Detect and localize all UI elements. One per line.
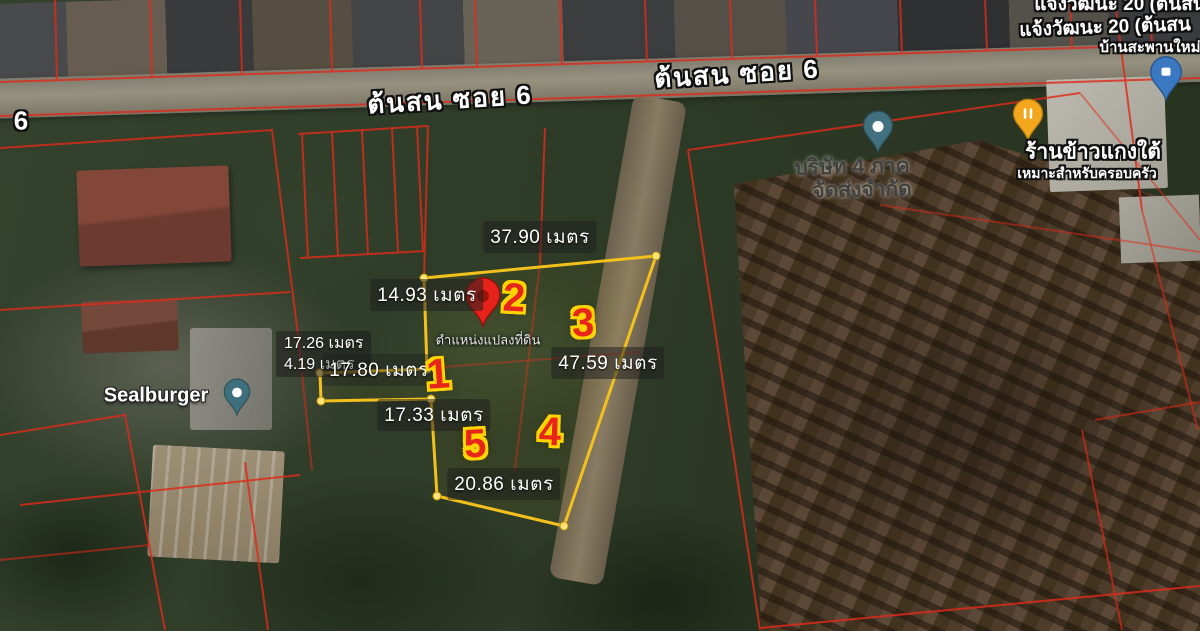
measurement-bottom: 20.86 เมตร bbox=[447, 468, 560, 500]
zone-marker-3: 3 bbox=[571, 303, 595, 344]
road-label-edge-number: 6 bbox=[14, 106, 30, 137]
plot-caption: ตำแหน่งแปลงที่ดิน bbox=[436, 330, 541, 351]
measurement-upper-left: 14.93 เมตร bbox=[370, 279, 483, 311]
transit-pin[interactable] bbox=[1151, 57, 1182, 100]
company-pin[interactable] bbox=[864, 111, 893, 152]
zone-marker-1: 1 bbox=[425, 352, 451, 396]
top-right-label-line3: บ้านสะพานใหม่ bbox=[1099, 35, 1200, 59]
measurement-right: 47.59 เมตร bbox=[551, 347, 664, 379]
zone-marker-4: 4 bbox=[538, 412, 562, 453]
zone-marker-2: 2 bbox=[502, 277, 526, 318]
sealburger-pin[interactable] bbox=[224, 379, 250, 415]
satellite-map: ต้นสน ซอย 6 ต้นสน ซอย 6 6 37.90 เมตร 14.… bbox=[0, 0, 1200, 631]
measurement-top: 37.90 เมตร bbox=[483, 221, 596, 253]
poi-label-company-line2[interactable]: จัดส่งจำกัด bbox=[812, 173, 912, 208]
zone-marker-5: 5 bbox=[463, 423, 487, 464]
measurement-arm: 17.80 เมตร bbox=[322, 354, 435, 386]
poi-label-restaurant-line2[interactable]: เหมาะสำหรับครอบครัว bbox=[1017, 163, 1157, 185]
poi-label-sealburger[interactable]: Sealburger bbox=[104, 385, 208, 408]
restaurant-pin[interactable] bbox=[1014, 99, 1043, 140]
measurement-side-a: 17.26 เมตร bbox=[284, 333, 363, 354]
